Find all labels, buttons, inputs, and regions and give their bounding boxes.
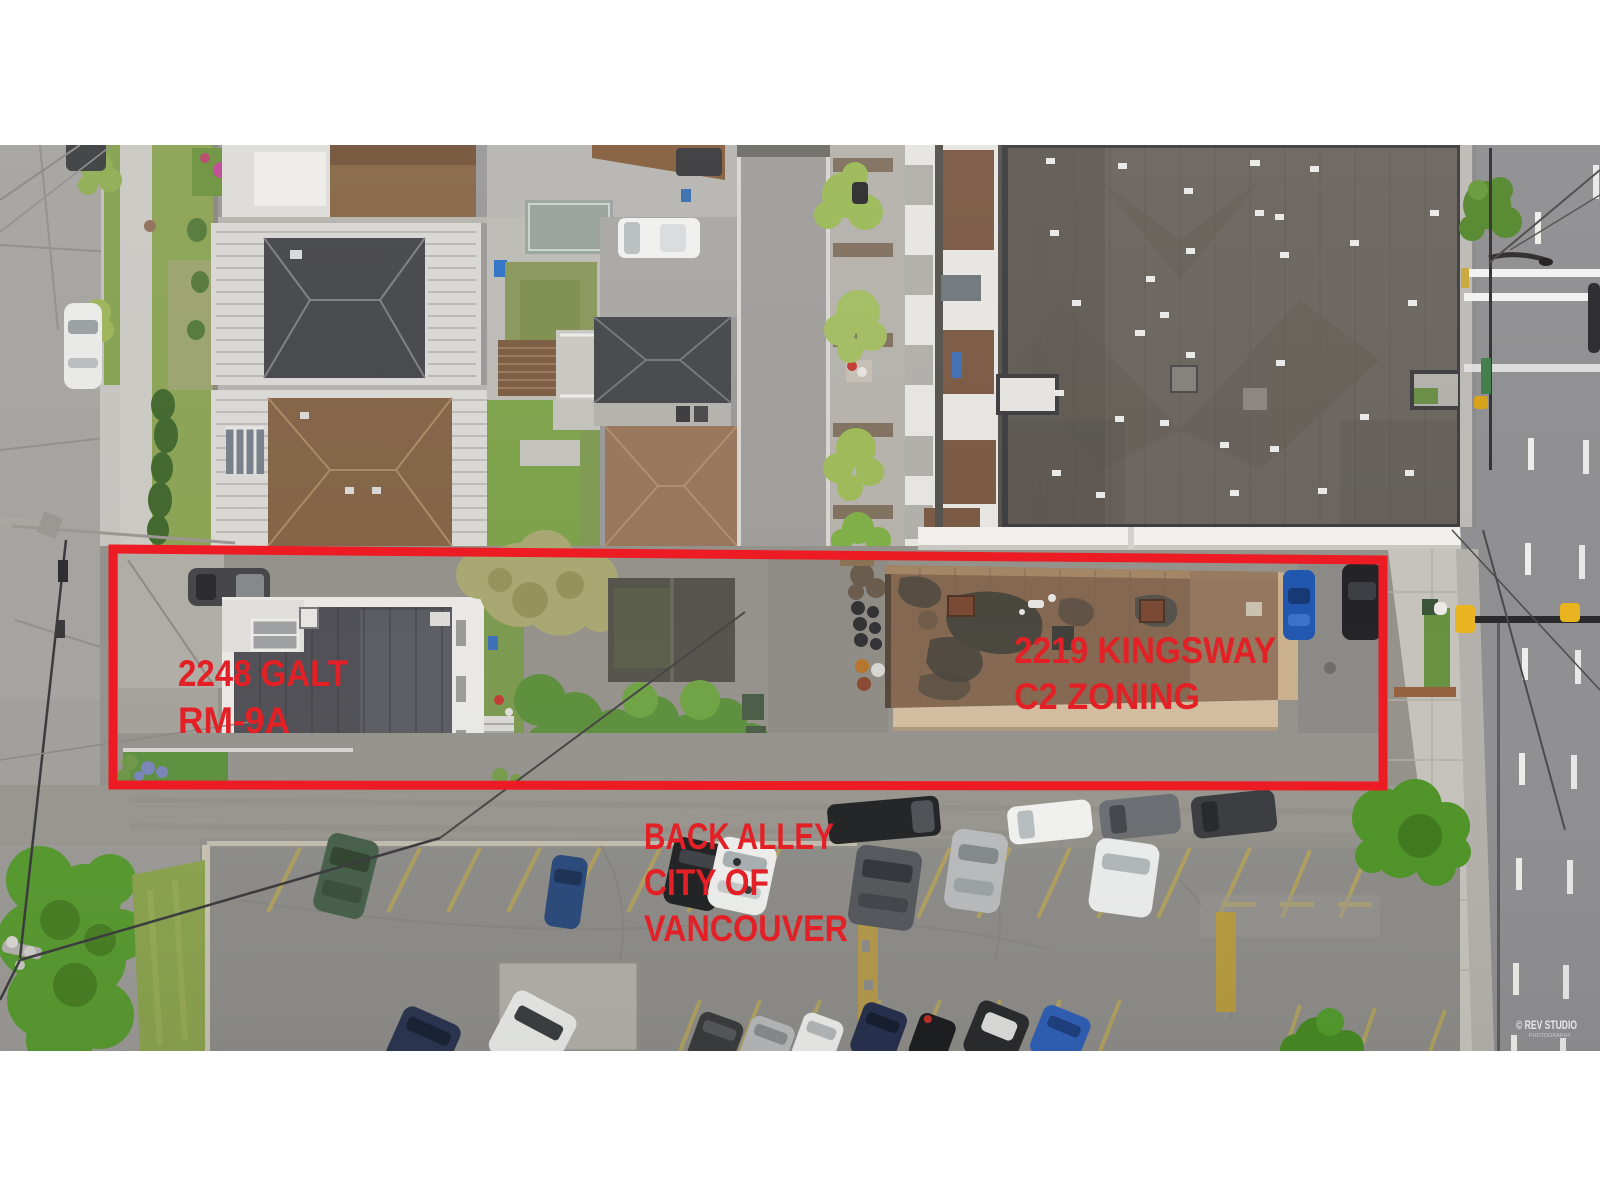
svg-text:RM-9A: RM-9A xyxy=(178,700,290,741)
svg-text:BACK ALLEY: BACK ALLEY xyxy=(644,816,834,857)
svg-text:2248 GALT: 2248 GALT xyxy=(178,653,348,694)
svg-text:2219 KINGSWAY: 2219 KINGSWAY xyxy=(1014,630,1276,671)
svg-text:C2 ZONING: C2 ZONING xyxy=(1014,676,1200,717)
svg-text:VANCOUVER: VANCOUVER xyxy=(644,908,848,949)
svg-text:CITY OF: CITY OF xyxy=(644,862,769,903)
svg-text:PHOTOGRAPHY: PHOTOGRAPHY xyxy=(1529,1033,1571,1039)
svg-text:© REV STUDIO: © REV STUDIO xyxy=(1516,1018,1577,1032)
